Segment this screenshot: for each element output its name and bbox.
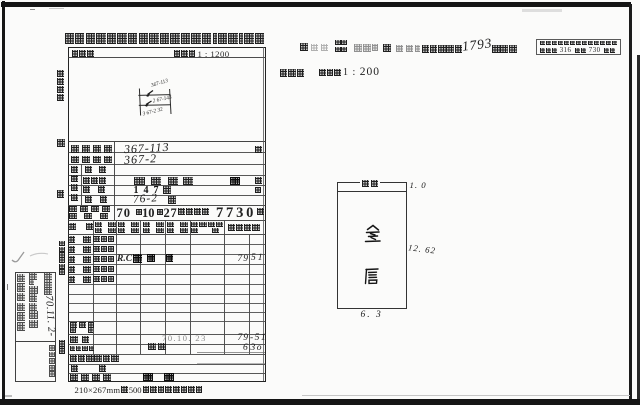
- svg-text:3 67-2 32: 3 67-2 32: [141, 107, 164, 118]
- svg-text:2 67-143: 2 67-143: [152, 95, 172, 105]
- svg-text:367-113: 367-113: [149, 78, 169, 89]
